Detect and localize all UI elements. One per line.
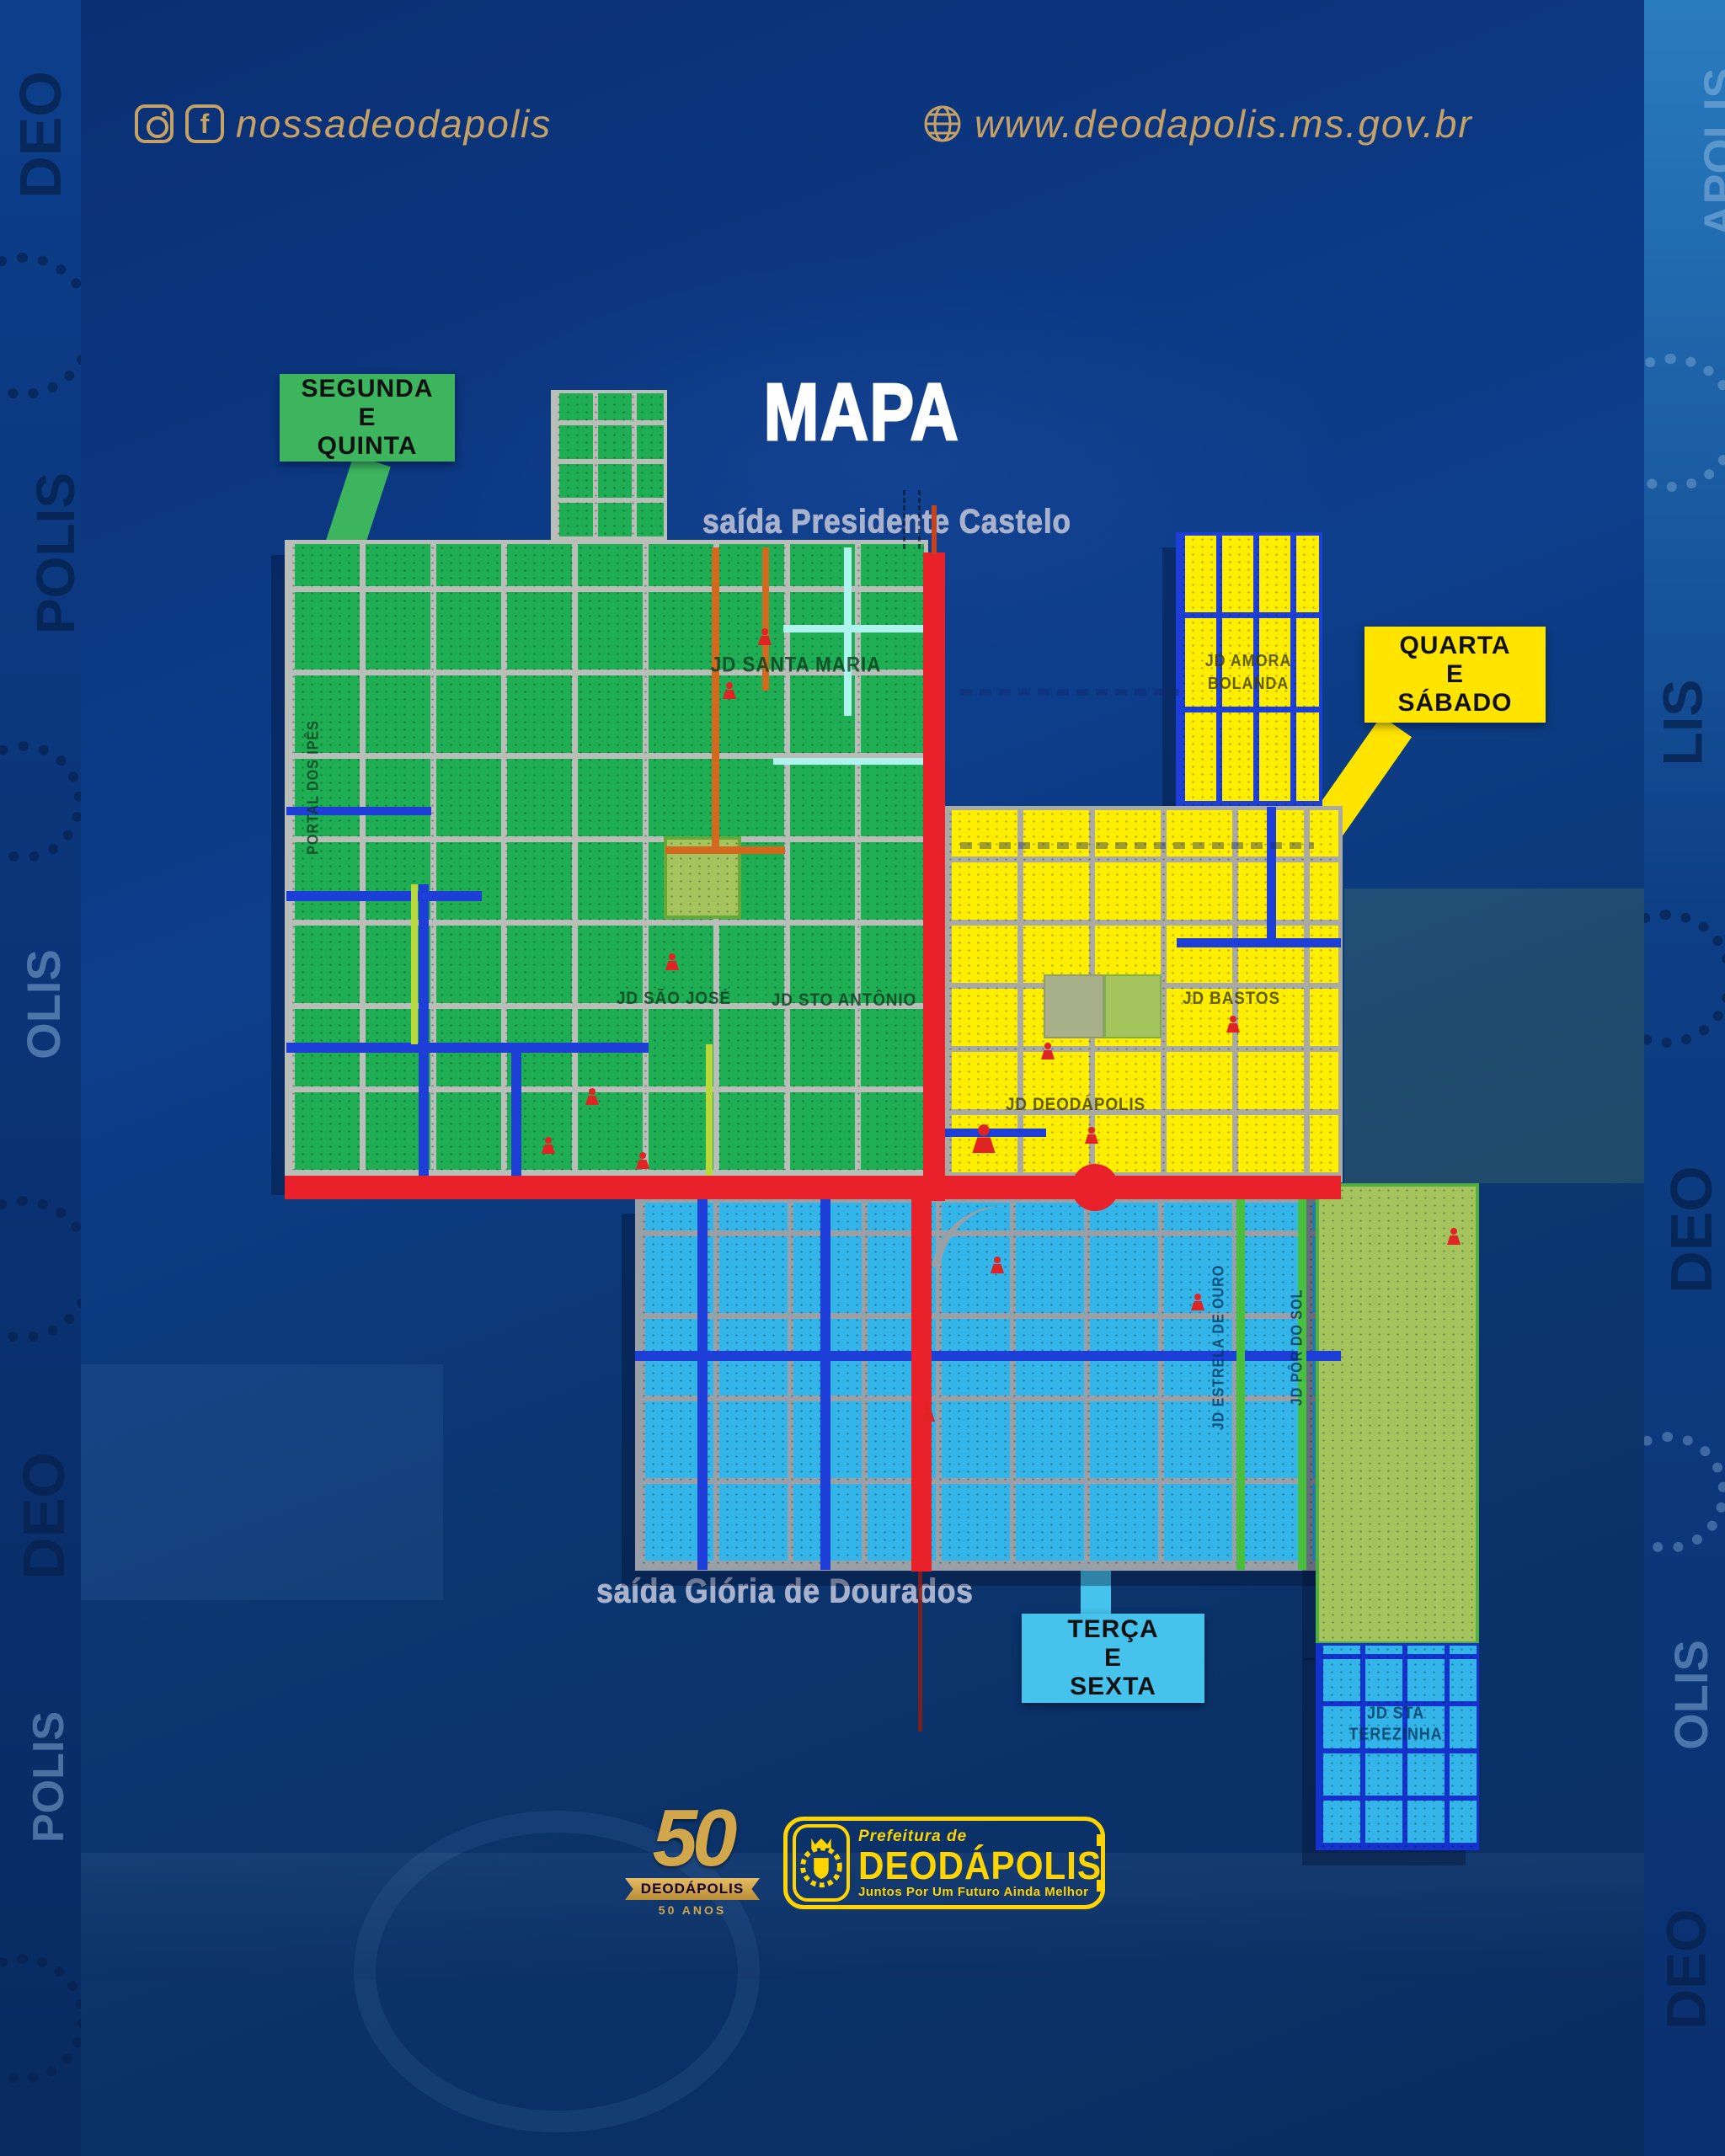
anniversary-years: 50 ANOS <box>617 1903 768 1917</box>
street-blue <box>697 1199 708 1570</box>
street-cyan <box>844 547 852 716</box>
district-estrela-de-ouro: JD ESTRELA DE OURO <box>1210 1265 1228 1431</box>
road-exit-north <box>932 505 937 554</box>
monument-icon <box>585 1088 599 1105</box>
road-main-horizontal <box>285 1176 1341 1199</box>
street-cyan <box>783 625 927 632</box>
district-sto-antonio: JD STO ANTÔNIO <box>772 990 916 1011</box>
monument-icon <box>665 953 679 970</box>
logo-notch <box>1097 1834 1105 1846</box>
district-bastos: JD BASTOS <box>1183 989 1280 1009</box>
monument-icon <box>991 1257 1004 1273</box>
district-amora-line2: BOLANDA <box>1180 675 1316 693</box>
photo-trees <box>1344 889 1644 1183</box>
district-santa-maria: JD SANTA MARIA <box>711 654 882 678</box>
street-green <box>1236 1199 1245 1570</box>
district-por-do-sol: JD PÔR DO SOL <box>1289 1289 1306 1406</box>
monument-icon <box>758 628 772 645</box>
monument-icon <box>1041 1043 1055 1059</box>
instagram-icon <box>135 104 174 143</box>
monument-icon <box>1191 1294 1204 1310</box>
legend-blue-line1: TERÇA <box>1067 1615 1158 1644</box>
faint-street-names <box>960 689 1179 696</box>
social-handle[interactable]: nossadeodapolis <box>236 101 552 147</box>
legend-yellow-line1: QUARTA <box>1399 632 1510 660</box>
street-blue <box>1177 938 1341 947</box>
page-title: MAPA <box>764 366 959 459</box>
district-amora-line1: JD AMORA <box>1180 652 1316 670</box>
monument-icon <box>1447 1228 1461 1245</box>
poster: DEO POLIS OLIS DEO POLIS APOLIS LIS DEO … <box>0 0 1725 2156</box>
legend-blue-line2: E <box>1104 1644 1122 1673</box>
legend-blue-box: TERÇA E SEXTA <box>1022 1614 1204 1703</box>
street-blue <box>419 884 429 1199</box>
district-deodapolis: JD DEODÁPOLIS <box>1006 1095 1146 1115</box>
street-lime <box>706 1044 713 1179</box>
district-terezinha-line2: TEREZINHA <box>1348 1726 1442 1745</box>
street-blue <box>1267 807 1276 942</box>
road-south-vertical <box>911 1199 932 1572</box>
anniversary-number: 50 <box>617 1801 768 1876</box>
social-row: f nossadeodapolis <box>135 101 552 147</box>
prefeitura-logo: Prefeitura de DEODÁPOLIS Juntos Por Um F… <box>783 1817 1105 1909</box>
zone-green-monday-thursday <box>285 540 928 1180</box>
monument-icon <box>921 1405 935 1422</box>
district-terezinha-line1: JD STA <box>1367 1705 1424 1724</box>
exit-bottom-label: saída Glória de Dourados <box>596 1573 974 1611</box>
street-blue <box>286 891 482 901</box>
monument-icon <box>636 1152 649 1169</box>
legend-green-line2: E <box>358 403 376 432</box>
anniversary-ribbon: DEODÁPOLIS <box>625 1878 760 1900</box>
dashed-road <box>903 490 905 549</box>
globe-icon <box>922 104 963 144</box>
zone-blue-terezinha-strip <box>1316 1643 1479 1850</box>
street-blue <box>820 1199 830 1570</box>
anniversary-50-logo: 50 DEODÁPOLIS 50 ANOS <box>617 1801 768 1940</box>
legend-yellow-line2: E <box>1446 660 1464 689</box>
street-cyan <box>773 758 927 765</box>
street-blue <box>286 1043 649 1053</box>
website-url[interactable]: www.deodapolis.ms.gov.br <box>975 101 1473 147</box>
gray-special-block <box>1044 974 1104 1038</box>
border-pattern-right: APOLIS LIS DEO OLIS DEO <box>1644 0 1725 2156</box>
legend-blue-line3: SEXTA <box>1070 1673 1156 1701</box>
legend-green-line3: QUINTA <box>318 432 418 461</box>
border-pattern-left: DEO POLIS OLIS DEO POLIS <box>0 0 81 2156</box>
roundabout <box>1071 1164 1119 1211</box>
prefeitura-name: DEODÁPOLIS <box>858 1846 1102 1885</box>
street-orange <box>712 547 719 851</box>
street-orange <box>665 846 785 854</box>
monument-icon <box>723 682 736 699</box>
street-blue <box>635 1351 1341 1361</box>
facebook-icon: f <box>185 104 224 143</box>
district-sao-jose: JD SÃO JOSÉ <box>617 989 731 1009</box>
website-row: www.deodapolis.ms.gov.br <box>922 101 1473 147</box>
legend-yellow-line3: SÁBADO <box>1397 689 1512 718</box>
legend-green-line1: SEGUNDA <box>301 375 433 403</box>
legend-green-box: SEGUNDA E QUINTA <box>280 374 455 462</box>
monument-icon <box>542 1137 555 1154</box>
district-portal-ipes: PORTAL DOS IPÊS <box>305 720 323 855</box>
faint-street-names <box>960 842 1314 849</box>
road-main-vertical <box>923 552 945 1201</box>
zone-yellow-north-arm <box>1176 532 1322 810</box>
legend-yellow-box: QUARTA E SÁBADO <box>1365 627 1546 723</box>
photo-building <box>81 1364 443 1600</box>
monument-icon <box>972 1124 995 1153</box>
zone-green-north-arm <box>551 390 667 545</box>
olive-special-block <box>1104 974 1162 1038</box>
logo-notch <box>1097 1880 1105 1892</box>
city-crest-icon <box>793 1824 850 1902</box>
zone-olive-field <box>1316 1183 1479 1645</box>
street-lime <box>411 884 418 1044</box>
monument-icon <box>1085 1127 1098 1144</box>
dashed-road <box>918 490 921 549</box>
road-exit-south <box>918 1572 922 1732</box>
monument-icon <box>1226 1016 1240 1033</box>
exit-top-label: saída Presidente Castelo <box>702 504 1071 542</box>
